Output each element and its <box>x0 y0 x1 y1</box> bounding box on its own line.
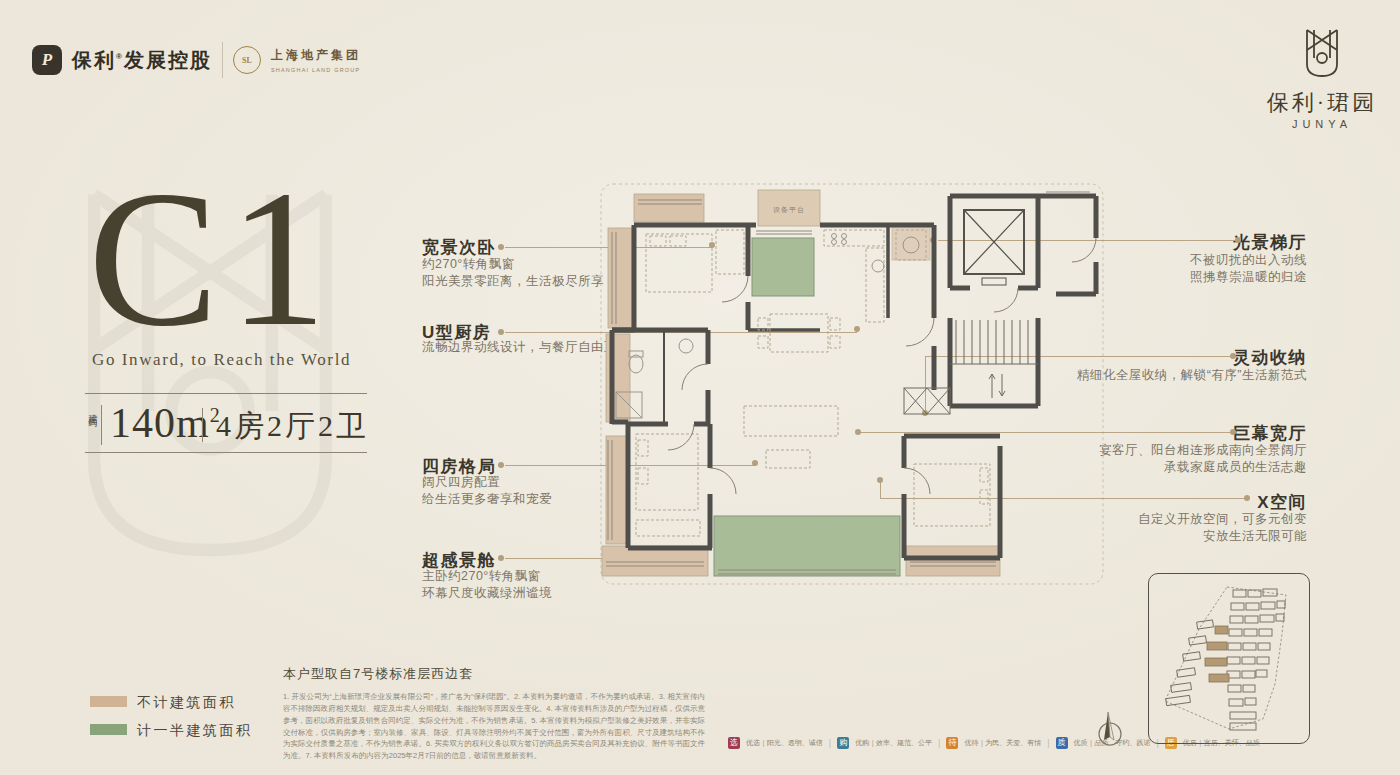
elevator <box>964 210 1024 285</box>
poly-brand-name: 保利®发展控股 <box>72 47 212 74</box>
source-note: 本户型取自7号楼标准层西边套 <box>283 665 473 683</box>
leader-dot <box>1230 429 1236 435</box>
stairs <box>950 320 1038 398</box>
layout-value: 4房2厅2卫 <box>216 406 369 447</box>
area-value: 140m2 <box>110 399 221 447</box>
badge-divider: | <box>829 738 831 748</box>
rule-bottom <box>85 452 367 453</box>
rule-top <box>85 393 367 394</box>
compass-icon <box>1094 706 1130 752</box>
door-arcs <box>668 238 1096 494</box>
badge-divider: | <box>938 738 940 748</box>
area-divider-2 <box>202 408 203 442</box>
partner-brand: 上海地产集团 SHANGHAI LAND GROUP <box>271 47 361 73</box>
floor-plan: 设备平台 <box>598 168 1168 608</box>
green-balconies <box>714 238 900 576</box>
siteplan-map <box>1149 574 1306 740</box>
header-divider <box>222 42 223 78</box>
feature-title-lobby: 光景梯厅 <box>1233 231 1307 254</box>
header-left: P 保利®发展控股 SL 上海地产集团 SHANGHAI LAND GROUP <box>32 42 361 78</box>
badge-icon: 待 <box>946 737 958 749</box>
leader-dot <box>498 244 504 250</box>
area-divider-1 <box>101 405 102 445</box>
badge-label: 优选｜阳光、透明、诚信 <box>746 738 823 748</box>
partner-name-en: SHANGHAI LAND GROUP <box>271 67 361 73</box>
siteplan-box <box>1148 573 1310 744</box>
badge-icon: 购 <box>837 737 849 749</box>
leader-dot <box>1235 237 1241 243</box>
badge-icon: 选 <box>728 737 740 749</box>
project-name-en: JUNYA <box>1257 118 1387 130</box>
platform-label: 设备平台 <box>773 206 805 214</box>
leader-dot <box>498 329 504 335</box>
leader-dot <box>1244 495 1250 501</box>
feature-desc: 主卧约270°转角飘窗环幕尺度收藏绿洲谧境 <box>422 568 552 601</box>
area-prefix: 建面约 <box>86 407 99 413</box>
legend-label-green: 计一半建筑面积 <box>137 722 253 740</box>
leader-dot <box>498 555 504 561</box>
shanghai-land-logo-icon: SL <box>233 46 261 74</box>
storage-hatch <box>904 388 950 414</box>
badge-label: 优待｜为民、关爱、有情 <box>964 738 1041 748</box>
project-name: 保利·珺园 <box>1257 88 1387 118</box>
leader-line <box>505 558 608 559</box>
feature-title-storage: 灵动收纳 <box>1233 346 1307 369</box>
disclaimer-text: 1. 开发公司为“上海新璟湾企业发展有限公司”，推广名为“保利珺园”。2. 本资… <box>283 691 705 762</box>
badge-label: 优购｜效率、规范、公平 <box>855 738 932 748</box>
feature-desc: 不被叨扰的出入动线照拂尊崇温暖的归途 <box>1190 252 1307 285</box>
leader-dot <box>498 462 504 468</box>
legend-label-tan: 不计建筑面积 <box>137 694 236 712</box>
tagline: Go Inward, to Reach the World <box>92 350 351 370</box>
feature-desc: 阔尺四房配置给生活更多奢享和宠爱 <box>422 474 552 507</box>
legend-swatch-tan <box>90 696 127 707</box>
legend-swatch-green <box>90 724 127 735</box>
site-buildings-highlighted <box>1205 626 1229 682</box>
poly-logo-icon: P <box>32 45 62 75</box>
junya-monogram-icon <box>1300 28 1344 80</box>
unit-code: C1 <box>88 160 337 356</box>
partner-name-cn: 上海地产集团 <box>271 47 361 64</box>
poster-canvas: P 保利®发展控股 SL 上海地产集团 SHANGHAI LAND GROUP … <box>0 0 1400 775</box>
feature-desc: 约270°转角飘窗阳光美景零距离，生活极尽所享 <box>422 256 604 289</box>
badge-divider: | <box>1047 738 1049 748</box>
badge-icon: 质 <box>1056 737 1068 749</box>
leader-dot <box>1230 353 1236 359</box>
